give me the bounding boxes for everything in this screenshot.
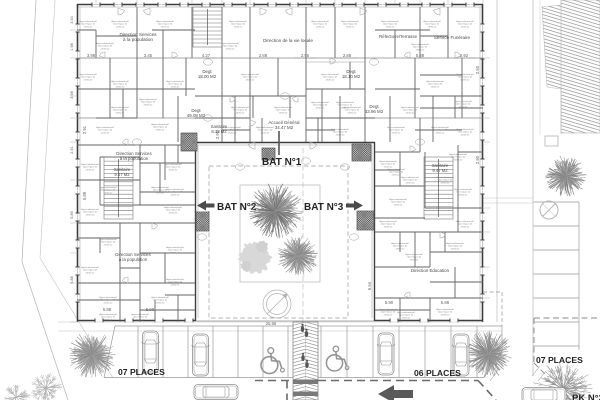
svg-text:23.80 m2: 23.80 m2 bbox=[104, 244, 114, 246]
svg-text:Open Space 02: Open Space 02 bbox=[153, 300, 168, 302]
svg-text:23.80 m2: 23.80 m2 bbox=[171, 86, 181, 88]
svg-text:Agent administratif: Agent administratif bbox=[99, 296, 117, 299]
svg-text:Agent administratif: Agent administratif bbox=[156, 20, 174, 23]
svg-text:Open Space 02: Open Space 02 bbox=[83, 270, 98, 272]
svg-text:Open Space 02: Open Space 02 bbox=[168, 250, 183, 252]
svg-text:Agent administratif: Agent administratif bbox=[436, 176, 454, 179]
svg-text:23.80 m2: 23.80 m2 bbox=[161, 26, 171, 28]
svg-text:23.80 m2: 23.80 m2 bbox=[406, 112, 416, 114]
svg-text:23.80 m2: 23.80 m2 bbox=[226, 48, 236, 50]
svg-text:Open Space 02: Open Space 02 bbox=[168, 84, 183, 86]
svg-text:2.95: 2.95 bbox=[301, 53, 310, 58]
svg-text:Agent administratif: Agent administratif bbox=[311, 20, 329, 23]
svg-text:Open Space 02: Open Space 02 bbox=[225, 130, 240, 132]
svg-text:Open Space 02: Open Space 02 bbox=[153, 127, 168, 129]
svg-text:23.80 m2: 23.80 m2 bbox=[326, 79, 336, 81]
svg-text:Agent administratif: Agent administratif bbox=[111, 80, 129, 83]
svg-text:23.80 m2: 23.80 m2 bbox=[246, 79, 256, 81]
svg-text:2.91: 2.91 bbox=[70, 146, 74, 153]
svg-text:Agent administratif: Agent administratif bbox=[131, 313, 149, 316]
svg-text:2.88: 2.88 bbox=[259, 53, 268, 58]
svg-text:Agent administratif: Agent administratif bbox=[151, 123, 169, 126]
svg-text:Open Space 02: Open Space 02 bbox=[98, 46, 113, 48]
svg-text:23.80 m2: 23.80 m2 bbox=[410, 259, 420, 261]
svg-text:23.80 m2: 23.80 m2 bbox=[86, 214, 96, 216]
svg-text:23.80 m2: 23.80 m2 bbox=[386, 26, 396, 28]
svg-text:Open Space 02: Open Space 02 bbox=[313, 105, 328, 107]
svg-text:5.88: 5.88 bbox=[416, 53, 425, 58]
svg-text:Open Space 02: Open Space 02 bbox=[141, 102, 156, 104]
svg-text:Open Space 02: Open Space 02 bbox=[313, 24, 328, 26]
svg-text:Open Space 02: Open Space 02 bbox=[101, 242, 116, 244]
svg-text:5.88: 5.88 bbox=[441, 300, 450, 305]
svg-text:23.80 m2: 23.80 m2 bbox=[261, 132, 271, 134]
svg-text:23.80 m2: 23.80 m2 bbox=[84, 26, 94, 28]
svg-text:Agent administratif: Agent administratif bbox=[381, 20, 399, 23]
svg-text:Open Space 02: Open Space 02 bbox=[389, 172, 404, 174]
svg-text:49.08 M2: 49.08 M2 bbox=[187, 113, 206, 118]
svg-text:33.96 M2: 33.96 M2 bbox=[365, 109, 384, 114]
svg-text:Open Space 02: Open Space 02 bbox=[113, 110, 128, 112]
svg-text:Agent administratif: Agent administratif bbox=[164, 163, 182, 166]
svg-text:Open Space 02: Open Space 02 bbox=[276, 110, 291, 112]
svg-text:Agent administratif: Agent administratif bbox=[446, 242, 464, 245]
svg-text:2.88: 2.88 bbox=[343, 53, 352, 58]
svg-text:23.80 m2: 23.80 m2 bbox=[428, 26, 438, 28]
svg-text:Agent administratif: Agent administratif bbox=[81, 163, 99, 166]
svg-text:23.80 m2: 23.80 m2 bbox=[236, 112, 246, 114]
svg-text:Agent administratif: Agent administratif bbox=[456, 20, 474, 23]
svg-text:Open Space 02: Open Space 02 bbox=[231, 24, 246, 26]
svg-text:23.80 m2: 23.80 m2 bbox=[116, 86, 126, 88]
svg-text:23.80 m2: 23.80 m2 bbox=[396, 248, 406, 250]
svg-text:Open Space 02: Open Space 02 bbox=[101, 190, 116, 192]
svg-text:23.80 m2: 23.80 m2 bbox=[436, 132, 446, 134]
svg-text:Agent administratif: Agent administratif bbox=[166, 188, 184, 191]
svg-text:Open Space 02: Open Space 02 bbox=[391, 202, 406, 204]
svg-text:Agent administratif: Agent administratif bbox=[405, 253, 423, 256]
svg-text:Agent administratif: Agent administratif bbox=[456, 220, 474, 223]
svg-text:Open Space 02: Open Space 02 bbox=[233, 110, 248, 112]
svg-text:Open Space 02: Open Space 02 bbox=[389, 130, 404, 132]
svg-text:5.90: 5.90 bbox=[146, 307, 155, 312]
svg-text:2.92: 2.92 bbox=[460, 53, 469, 58]
svg-text:23.80 m2: 23.80 m2 bbox=[169, 169, 179, 171]
svg-text:Open Space 02: Open Space 02 bbox=[168, 192, 183, 194]
svg-text:Open Space 02: Open Space 02 bbox=[83, 167, 98, 169]
svg-text:23.80 m2: 23.80 m2 bbox=[104, 192, 114, 194]
svg-text:9.47 M2: 9.47 M2 bbox=[114, 172, 130, 177]
svg-text:23.80 m2: 23.80 m2 bbox=[459, 194, 469, 196]
svg-text:Agent administratif: Agent administratif bbox=[456, 128, 474, 131]
svg-text:Open Space 02: Open Space 02 bbox=[168, 282, 183, 284]
svg-text:Agent administratif: Agent administratif bbox=[341, 20, 359, 23]
svg-text:23.80 m2: 23.80 m2 bbox=[101, 132, 111, 134]
svg-text:Agent administratif: Agent administratif bbox=[343, 106, 361, 109]
svg-text:Service Funéraire: Service Funéraire bbox=[434, 35, 471, 40]
svg-text:Open Space 02: Open Space 02 bbox=[166, 167, 181, 169]
svg-text:Agent administratif: Agent administratif bbox=[454, 100, 472, 103]
svg-text:Open Space 02: Open Space 02 bbox=[381, 312, 396, 314]
svg-text:Agent administratif: Agent administratif bbox=[166, 278, 184, 281]
svg-text:23.80 m2: 23.80 m2 bbox=[86, 169, 96, 171]
svg-text:Agent administratif: Agent administratif bbox=[81, 266, 99, 269]
svg-text:Open Space 02: Open Space 02 bbox=[438, 180, 453, 182]
svg-text:Open Space 02: Open Space 02 bbox=[399, 315, 414, 317]
svg-text:Agent administratif: Agent administratif bbox=[431, 126, 449, 129]
svg-text:à la population: à la population bbox=[120, 156, 149, 161]
svg-text:2.91: 2.91 bbox=[82, 125, 87, 134]
svg-text:23.80 m2: 23.80 m2 bbox=[384, 166, 394, 168]
svg-text:Agent administratif: Agent administratif bbox=[96, 42, 114, 45]
svg-text:Agent administratif: Agent administratif bbox=[391, 242, 409, 245]
svg-text:Agent administratif: Agent administratif bbox=[231, 106, 249, 109]
svg-text:Open Space 02: Open Space 02 bbox=[166, 210, 181, 212]
svg-text:Open Space 02: Open Space 02 bbox=[333, 132, 348, 134]
svg-text:34.47 M2: 34.47 M2 bbox=[275, 125, 294, 130]
svg-text:Open Space 02: Open Space 02 bbox=[81, 24, 96, 26]
svg-text:Open Space 02: Open Space 02 bbox=[158, 24, 173, 26]
svg-text:Agent administratif: Agent administratif bbox=[166, 80, 184, 83]
svg-text:5.89: 5.89 bbox=[70, 211, 74, 218]
svg-text:Open Space 02: Open Space 02 bbox=[113, 84, 128, 86]
svg-text:3.98: 3.98 bbox=[87, 53, 96, 58]
svg-text:23.80 m2: 23.80 m2 bbox=[104, 319, 114, 321]
svg-text:Agent administratif: Agent administratif bbox=[397, 311, 415, 314]
svg-text:5.90: 5.90 bbox=[385, 300, 394, 305]
svg-text:Agent administratif: Agent administratif bbox=[411, 43, 429, 46]
svg-text:18.10 M2: 18.10 M2 bbox=[342, 74, 361, 79]
svg-text:Open Space 02: Open Space 02 bbox=[458, 77, 473, 79]
svg-text:Agent administratif: Agent administratif bbox=[456, 73, 474, 76]
svg-text:Agent administratif: Agent administratif bbox=[79, 73, 97, 76]
svg-text:23.80 m2: 23.80 m2 bbox=[441, 182, 451, 184]
svg-text:BAT N°3: BAT N°3 bbox=[304, 202, 344, 213]
svg-text:Agent administratif: Agent administratif bbox=[379, 220, 397, 223]
svg-text:Agent administratif: Agent administratif bbox=[256, 126, 274, 129]
svg-text:06 PLACES: 06 PLACES bbox=[414, 368, 461, 378]
svg-text:à la population: à la population bbox=[119, 257, 148, 262]
svg-text:23.80 m2: 23.80 m2 bbox=[392, 174, 402, 176]
svg-text:Open Space 02: Open Space 02 bbox=[403, 110, 418, 112]
svg-text:4.27: 4.27 bbox=[202, 53, 211, 58]
svg-text:Open Space 02: Open Space 02 bbox=[451, 157, 466, 159]
svg-text:23.80 m2: 23.80 m2 bbox=[279, 112, 289, 114]
svg-text:Agent administratif: Agent administratif bbox=[99, 186, 117, 189]
svg-text:Open Space 02: Open Space 02 bbox=[323, 77, 338, 79]
svg-text:2.90: 2.90 bbox=[475, 155, 480, 164]
svg-text:07 PLACES: 07 PLACES bbox=[536, 355, 583, 365]
svg-text:Open Space 02: Open Space 02 bbox=[407, 257, 422, 259]
svg-text:23.80 m2: 23.80 m2 bbox=[346, 26, 356, 28]
svg-text:Open Space 02: Open Space 02 bbox=[403, 180, 418, 182]
svg-text:Open Space 02: Open Space 02 bbox=[458, 24, 473, 26]
svg-text:Agent administratif: Agent administratif bbox=[321, 73, 339, 76]
svg-text:23.80 m2: 23.80 m2 bbox=[101, 48, 111, 50]
svg-text:Agent administratif: Agent administratif bbox=[223, 126, 241, 129]
svg-text:Agent administratif: Agent administratif bbox=[111, 106, 129, 109]
svg-text:Open Space 02: Open Space 02 bbox=[393, 246, 408, 248]
svg-text:3.54: 3.54 bbox=[70, 16, 74, 23]
svg-text:Agent administratif: Agent administratif bbox=[401, 106, 419, 109]
svg-text:Open Space 02: Open Space 02 bbox=[83, 212, 98, 214]
svg-text:23.80 m2: 23.80 m2 bbox=[171, 194, 181, 196]
svg-text:Agent administratif: Agent administratif bbox=[436, 308, 454, 311]
svg-text:à la population: à la population bbox=[123, 37, 153, 42]
svg-text:Open Space 02: Open Space 02 bbox=[458, 132, 473, 134]
svg-text:Open Space 02: Open Space 02 bbox=[243, 77, 258, 79]
svg-text:Open Space 02: Open Space 02 bbox=[425, 24, 440, 26]
svg-text:23.80 m2: 23.80 m2 bbox=[336, 134, 346, 136]
svg-text:Agent administratif: Agent administratif bbox=[311, 101, 329, 104]
svg-text:5.88: 5.88 bbox=[103, 307, 112, 312]
svg-text:23.80 m2: 23.80 m2 bbox=[441, 314, 451, 316]
svg-text:23.80 m2: 23.80 m2 bbox=[406, 182, 416, 184]
svg-text:23.80 m2: 23.80 m2 bbox=[461, 79, 471, 81]
svg-text:23.80 m2: 23.80 m2 bbox=[392, 132, 402, 134]
svg-text:Agent administratif: Agent administratif bbox=[81, 208, 99, 211]
svg-text:Agent administratif: Agent administratif bbox=[387, 126, 405, 129]
svg-text:23.80 m2: 23.80 m2 bbox=[116, 112, 126, 114]
svg-text:Agent administratif: Agent administratif bbox=[229, 20, 247, 23]
svg-text:23.80 m2: 23.80 m2 bbox=[384, 226, 394, 228]
svg-text:Open Space 02: Open Space 02 bbox=[101, 317, 116, 319]
svg-text:Open Space 02: Open Space 02 bbox=[343, 24, 358, 26]
svg-text:Open Space 02: Open Space 02 bbox=[413, 47, 428, 49]
svg-text:Agent administratif: Agent administratif bbox=[164, 206, 182, 209]
svg-text:23.80 m2: 23.80 m2 bbox=[171, 284, 181, 286]
svg-text:6.54: 6.54 bbox=[367, 281, 372, 290]
svg-text:5.89: 5.89 bbox=[82, 191, 87, 200]
svg-text:23.80 m2: 23.80 m2 bbox=[384, 314, 394, 316]
svg-text:Réfectoire/Terrasse: Réfectoire/Terrasse bbox=[379, 34, 418, 39]
svg-text:Agent administratif: Agent administratif bbox=[96, 126, 114, 129]
svg-text:Agent administratif: Agent administratif bbox=[389, 198, 407, 201]
svg-text:23.80 m2: 23.80 m2 bbox=[86, 272, 96, 274]
svg-text:Open Space 02: Open Space 02 bbox=[383, 24, 398, 26]
svg-text:23.80 m2: 23.80 m2 bbox=[454, 159, 464, 161]
svg-text:Agent administratif: Agent administratif bbox=[454, 188, 472, 191]
svg-text:Agent administratif: Agent administratif bbox=[221, 42, 239, 45]
svg-text:23.80 m2: 23.80 m2 bbox=[394, 204, 404, 206]
svg-text:Agent administratif: Agent administratif bbox=[379, 160, 397, 163]
svg-text:23.80 m2: 23.80 m2 bbox=[461, 226, 471, 228]
svg-text:Direction Education: Direction Education bbox=[411, 268, 450, 273]
svg-text:23.80 m2: 23.80 m2 bbox=[402, 317, 412, 319]
svg-text:Open Space 02: Open Space 02 bbox=[458, 224, 473, 226]
svg-text:Open Space 02: Open Space 02 bbox=[81, 77, 96, 79]
svg-text:Open Space 02: Open Space 02 bbox=[345, 110, 360, 112]
svg-text:23.80 m2: 23.80 m2 bbox=[316, 26, 326, 28]
svg-text:Open Space 02: Open Space 02 bbox=[381, 164, 396, 166]
svg-text:Agent administratif: Agent administratif bbox=[166, 246, 184, 249]
svg-text:23.80 m2: 23.80 m2 bbox=[234, 26, 244, 28]
svg-text:23.80 m2: 23.80 m2 bbox=[156, 302, 166, 304]
svg-text:Agent administratif: Agent administratif bbox=[274, 106, 292, 109]
svg-text:23.80 m2: 23.80 m2 bbox=[461, 26, 471, 28]
svg-text:23.80 m2: 23.80 m2 bbox=[416, 49, 426, 51]
svg-text:Open Space 02: Open Space 02 bbox=[433, 130, 448, 132]
svg-text:Agent administratif: Agent administratif bbox=[111, 20, 129, 23]
svg-text:Agent administratif: Agent administratif bbox=[449, 153, 467, 156]
svg-text:Agent administratif: Agent administratif bbox=[336, 101, 354, 104]
svg-text:2.50: 2.50 bbox=[475, 65, 480, 74]
svg-text:23.80 m2: 23.80 m2 bbox=[84, 79, 94, 81]
svg-text:23.80 m2: 23.80 m2 bbox=[431, 86, 441, 88]
svg-text:Direction de la vie locale: Direction de la vie locale bbox=[263, 38, 313, 43]
svg-text:07 PLACES: 07 PLACES bbox=[118, 367, 165, 377]
svg-text:23.80 m2: 23.80 m2 bbox=[459, 106, 469, 108]
svg-text:Agent administratif: Agent administratif bbox=[139, 98, 157, 101]
svg-text:23.80 m2: 23.80 m2 bbox=[348, 112, 358, 114]
svg-text:Agent administratif: Agent administratif bbox=[423, 20, 441, 23]
svg-text:Agent administratif: Agent administratif bbox=[401, 176, 419, 179]
svg-text:Open Space 02: Open Space 02 bbox=[381, 224, 396, 226]
svg-text:3.98: 3.98 bbox=[70, 91, 74, 98]
svg-text:23.80 m2: 23.80 m2 bbox=[169, 212, 179, 214]
svg-text:Open Space 02: Open Space 02 bbox=[258, 130, 273, 132]
svg-text:23.80 m2: 23.80 m2 bbox=[104, 302, 114, 304]
svg-text:23.80 m2: 23.80 m2 bbox=[136, 319, 146, 321]
svg-text:3.45: 3.45 bbox=[144, 53, 153, 58]
svg-text:23.80 m2: 23.80 m2 bbox=[156, 129, 166, 131]
svg-text:23.80 m2: 23.80 m2 bbox=[316, 107, 326, 109]
svg-text:23.80 m2: 23.80 m2 bbox=[228, 132, 238, 134]
svg-text:23.80 m2: 23.80 m2 bbox=[451, 248, 461, 250]
svg-text:Open Space 02: Open Space 02 bbox=[101, 300, 116, 302]
svg-text:Agent administratif: Agent administratif bbox=[151, 296, 169, 299]
svg-text:Open Space 02: Open Space 02 bbox=[98, 130, 113, 132]
svg-text:23.80 m2: 23.80 m2 bbox=[156, 192, 166, 194]
svg-text:Agent administratif: Agent administratif bbox=[379, 308, 397, 311]
svg-text:23.80 m2: 23.80 m2 bbox=[171, 252, 181, 254]
svg-text:Agent administratif: Agent administratif bbox=[331, 128, 349, 131]
svg-text:Open Space 02: Open Space 02 bbox=[223, 46, 238, 48]
svg-text:Open Space 02: Open Space 02 bbox=[113, 24, 128, 26]
svg-text:Open Space 02: Open Space 02 bbox=[133, 317, 148, 319]
svg-text:Agent administratif: Agent administratif bbox=[426, 80, 444, 83]
svg-text:BAT N°1: BAT N°1 bbox=[262, 157, 302, 168]
svg-text:Open Space 02: Open Space 02 bbox=[438, 312, 453, 314]
svg-text:Agent administratif: Agent administratif bbox=[241, 73, 259, 76]
svg-text:Agent administratif: Agent administratif bbox=[79, 20, 97, 23]
svg-text:Agent administratif: Agent administratif bbox=[99, 238, 117, 241]
svg-text:23.80 m2: 23.80 m2 bbox=[144, 104, 154, 106]
svg-text:Open Space 02: Open Space 02 bbox=[428, 84, 443, 86]
svg-text:23.80 m2: 23.80 m2 bbox=[461, 134, 471, 136]
svg-text:5.88: 5.88 bbox=[70, 276, 74, 283]
svg-text:1.98: 1.98 bbox=[70, 43, 74, 50]
svg-text:23.80 m2: 23.80 m2 bbox=[116, 26, 126, 28]
svg-text:Agent administratif: Agent administratif bbox=[387, 168, 405, 171]
svg-text:Open Space 02: Open Space 02 bbox=[456, 104, 471, 106]
svg-text:Open Space 02: Open Space 02 bbox=[448, 246, 463, 248]
svg-text:Open Space 02: Open Space 02 bbox=[456, 192, 471, 194]
svg-text:9.47 M2: 9.47 M2 bbox=[432, 168, 448, 173]
svg-text:18.00 M2: 18.00 M2 bbox=[198, 74, 217, 79]
svg-text:Agent administratif: Agent administratif bbox=[99, 313, 117, 316]
svg-text:PK N°2: PK N°2 bbox=[572, 393, 600, 400]
